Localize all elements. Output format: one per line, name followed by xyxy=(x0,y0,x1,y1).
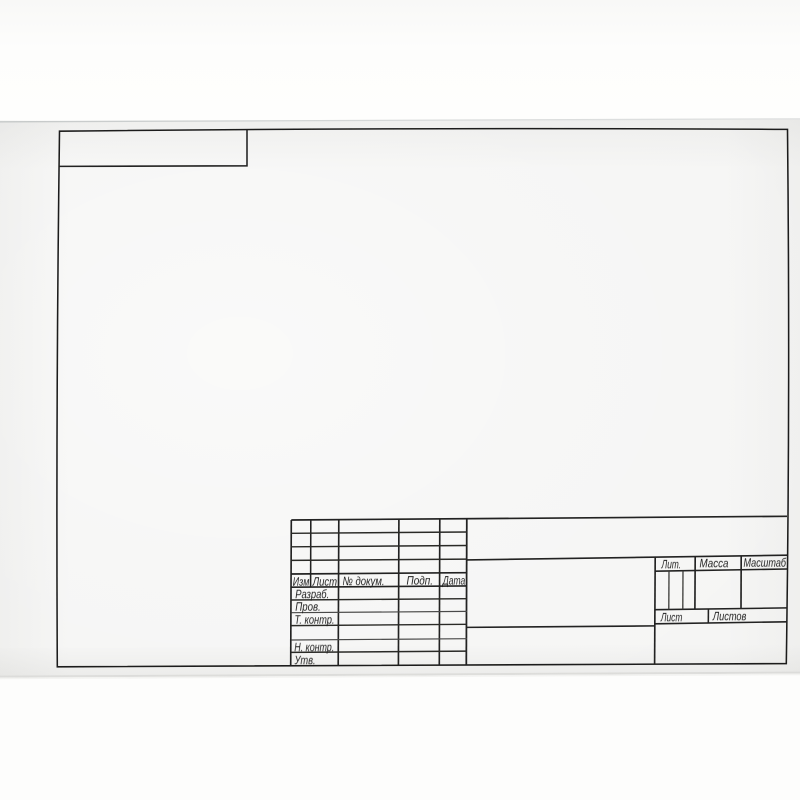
svg-text:Подп.: Подп. xyxy=(406,574,433,588)
svg-text:Масштаб: Масштаб xyxy=(743,556,786,570)
svg-text:Лист: Лист xyxy=(660,610,682,624)
svg-text:Лит.: Лит. xyxy=(661,557,681,571)
svg-text:№ докум.: № докум. xyxy=(342,574,384,588)
svg-text:Листов: Листов xyxy=(712,609,747,623)
svg-text:Утв.: Утв. xyxy=(294,653,316,667)
svg-text:Масса: Масса xyxy=(699,556,728,570)
svg-text:Т. контр.: Т. контр. xyxy=(295,613,335,627)
svg-text:Дата: Дата xyxy=(441,573,465,587)
